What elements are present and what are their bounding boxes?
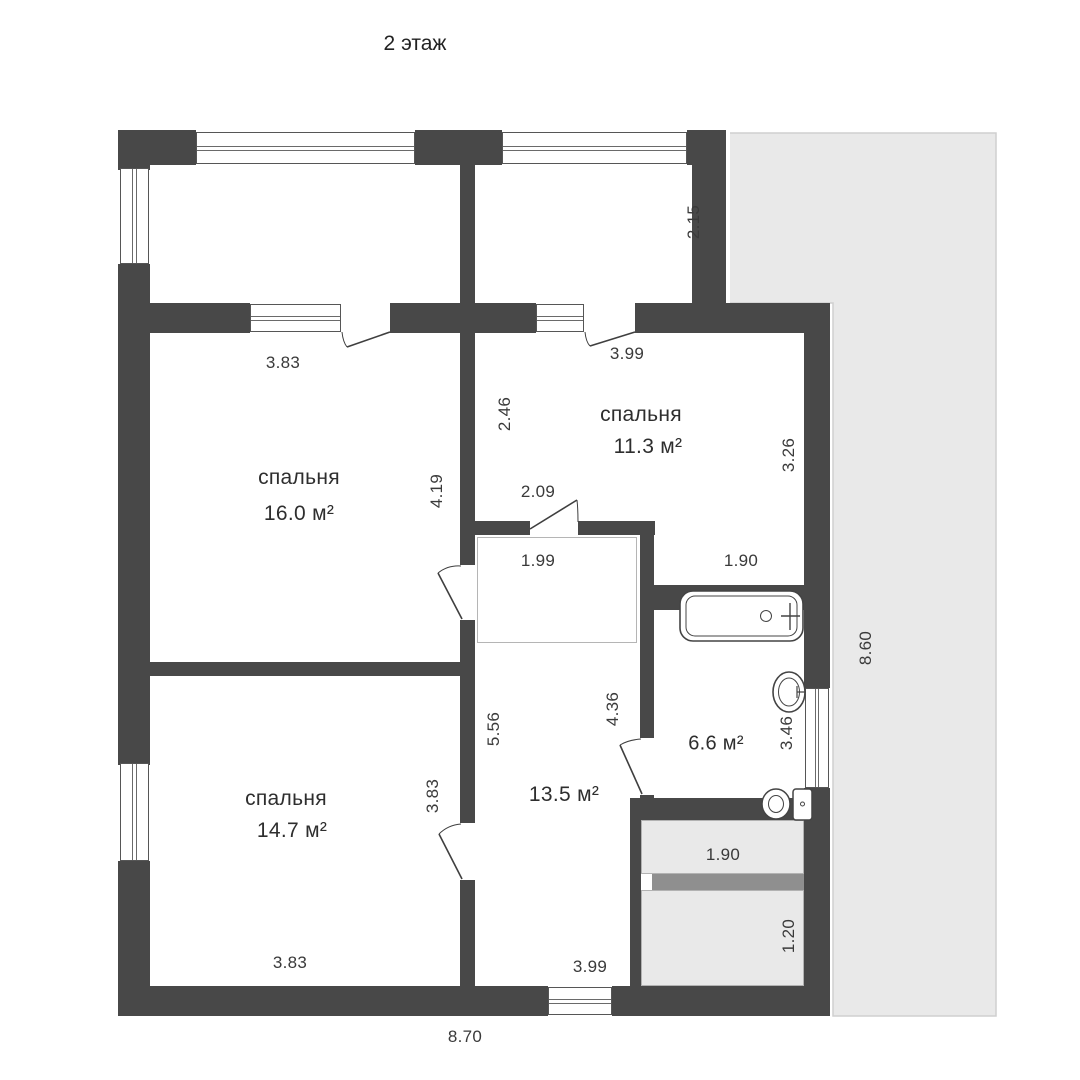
window [250, 304, 341, 332]
dimension-label: 1.90 [706, 845, 740, 865]
wall [118, 130, 150, 170]
room-label-bedroom-16: спальня [258, 466, 340, 490]
wall [118, 264, 150, 765]
floor-title: 2 этаж [384, 32, 447, 56]
wall [460, 880, 475, 986]
wall [475, 521, 530, 535]
dimension-label: 4.19 [427, 474, 447, 508]
dimension-label: 3.83 [266, 353, 300, 373]
wall [150, 662, 467, 676]
dimension-label: 2.09 [521, 482, 555, 502]
dimension-label: 1.20 [779, 919, 799, 953]
dimension-label: 3.99 [610, 344, 644, 364]
wall [804, 303, 830, 688]
room-label-bedroom-11: спальня [600, 403, 682, 427]
dimension-label: 5.56 [484, 712, 504, 746]
wall [640, 521, 654, 738]
dimension-label: 1.99 [521, 551, 555, 571]
wall [654, 798, 804, 820]
wall [415, 130, 502, 165]
dimension-label: 2.46 [495, 397, 515, 431]
wall [640, 795, 654, 820]
dimension-label: 3.46 [777, 716, 797, 750]
dimension-label: 1.90 [724, 551, 758, 571]
window [196, 132, 415, 164]
dimension-label: 3.83 [273, 953, 307, 973]
wall [804, 788, 830, 1016]
window [548, 987, 612, 1015]
room-area-bedroom-11: 11.3 м² [614, 435, 683, 459]
dimension-label: 4.36 [603, 692, 623, 726]
dimension-label: 3.83 [423, 779, 443, 813]
room-label-bedroom-14: спальня [245, 787, 327, 811]
dimension-label: 8.70 [448, 1027, 482, 1047]
wall [654, 585, 804, 610]
room-area-bedroom-14: 14.7 м² [257, 819, 327, 843]
window [120, 168, 149, 264]
wall [687, 130, 726, 165]
stair-top-landing [477, 537, 637, 643]
wall [612, 986, 830, 1016]
room-area-bedroom-16: 16.0 м² [264, 502, 334, 526]
floor-plan: 2 этаж спальня 16.0 м² спальня 11.3 м² с… [0, 0, 1080, 1080]
stair-landing-step [652, 874, 804, 890]
room-area-bathroom: 6.6 м² [688, 733, 744, 756]
dimension-label: 3.26 [779, 438, 799, 472]
wall [460, 163, 475, 565]
window [502, 132, 687, 164]
wall [460, 620, 475, 823]
dimension-label: 3.99 [573, 957, 607, 977]
room-area-hall: 13.5 м² [529, 783, 599, 807]
dimension-label: 8.60 [856, 631, 876, 665]
wall [630, 798, 641, 986]
wall [118, 986, 548, 1016]
window [536, 304, 584, 332]
wall [635, 303, 804, 333]
wall [150, 303, 250, 333]
dimension-label: 2.15 [684, 205, 704, 239]
window [120, 763, 149, 861]
window [805, 688, 829, 788]
